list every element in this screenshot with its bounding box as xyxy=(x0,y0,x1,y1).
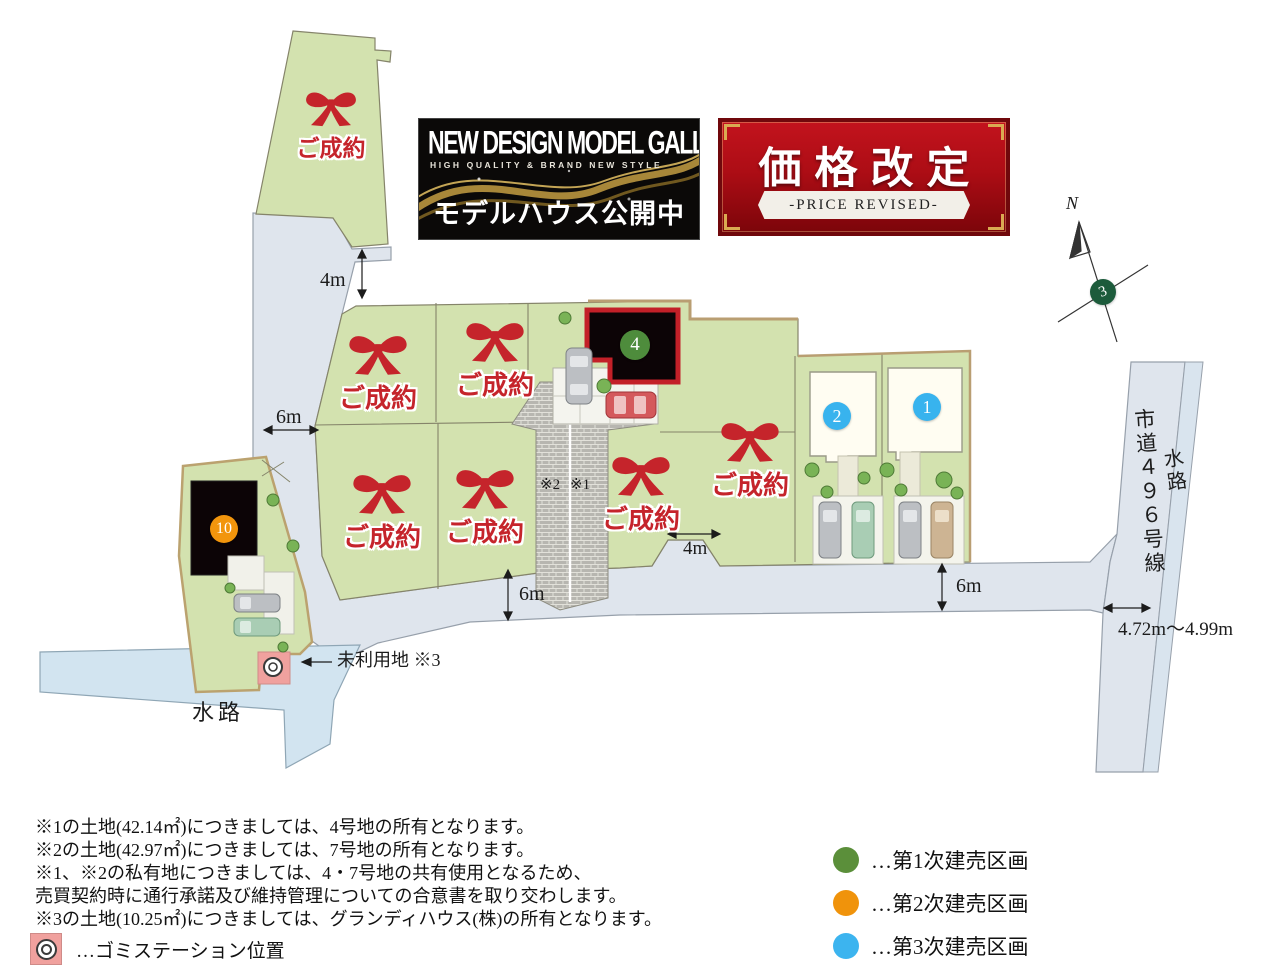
ribbon-bow-icon xyxy=(452,465,518,511)
sold-ribbon: ご成約 xyxy=(330,331,426,415)
garbage-station-legend: …ゴミステーション位置 xyxy=(30,933,285,965)
lot4-number-badge: 4 xyxy=(620,330,650,360)
legend-item-phase3: …第3次建売区画 xyxy=(833,931,1029,961)
footnote-line: ※1の土地(42.14㎡)につきましては、4号地の所有となります。 xyxy=(35,816,662,839)
legend-item-phase2: …第2次建売区画 xyxy=(833,888,1029,918)
measure-top-gap: 4m xyxy=(320,270,346,290)
lot4-number: 4 xyxy=(630,334,640,356)
measure-west-road: 6m xyxy=(276,407,302,427)
ribbon-bow-icon xyxy=(302,88,360,128)
gold-corner-icon xyxy=(988,214,1004,230)
ribbon-bow-icon xyxy=(717,418,783,464)
phase2-dot-icon xyxy=(833,890,859,916)
sold-label: ご成約 xyxy=(297,129,366,163)
measure-south-road-east: 6m xyxy=(956,576,982,596)
sold-ribbon: ご成約 xyxy=(447,318,543,402)
ribbon-bow-icon xyxy=(462,318,528,364)
sold-label: ご成約 xyxy=(711,465,789,502)
phase3-dot-icon xyxy=(833,933,859,959)
private-area-1-label: ※1 xyxy=(570,478,590,493)
garbage-station-marker xyxy=(258,652,290,684)
footnote-line: 売買契約時に通行承諾及び維持管理についての合意書を取り交わします。 xyxy=(35,885,662,908)
lot10-number-badge: 10 xyxy=(210,515,238,543)
price-revised-banner: 価格改定 -PRICE REVISED- xyxy=(718,118,1010,236)
price-banner-subtitle: -PRICE REVISED- xyxy=(789,197,939,214)
lot10-number: 10 xyxy=(216,520,232,538)
ribbon-bow-icon xyxy=(345,331,411,377)
site-plan-page: ご成約 ご成約 ご成約 ご成約 ご成約 xyxy=(0,0,1280,979)
sold-ribbon: ご成約 xyxy=(283,88,379,163)
gallery-banner-title: NEW DESIGN MODEL GALLERY xyxy=(428,125,700,163)
model-gallery-banner: NEW DESIGN MODEL GALLERY HIGH QUALITY & … xyxy=(418,118,700,240)
phase-legend: …第1次建売区画 …第2次建売区画 …第3次建売区画 xyxy=(833,845,1029,961)
gold-corner-icon xyxy=(724,214,740,230)
ribbon-bow-icon xyxy=(349,470,415,516)
south-canal-label: 水路 xyxy=(192,702,244,724)
sold-label: ご成約 xyxy=(446,512,524,549)
phase1-label: …第1次建売区画 xyxy=(871,845,1029,875)
footnote-line: ※2の土地(42.97㎡)につきましては、7号地の所有となります。 xyxy=(35,839,662,862)
measure-east-road-width: 4.72m〜4.99m xyxy=(1118,620,1233,639)
phase1-dot-icon xyxy=(833,847,859,873)
private-area-2-label: ※2 xyxy=(540,478,560,493)
sold-label: ご成約 xyxy=(456,365,534,402)
price-banner-ribbon: -PRICE REVISED- xyxy=(758,191,970,219)
footnote-line: ※1、※2の私有地につきましては、4・7号地の共有使用となるため、 xyxy=(35,862,662,885)
ribbon-bow-icon xyxy=(608,452,674,498)
compass-north-label: N xyxy=(1066,194,1078,212)
garbage-station-label: …ゴミステーション位置 xyxy=(76,936,285,963)
lot2-number: 2 xyxy=(833,406,842,427)
garbage-station-icon xyxy=(30,933,62,965)
footnote-line: ※3の土地(10.25㎡)につきましては、グランディハウス(株)の所有となります… xyxy=(35,908,662,931)
phase3-label: …第3次建売区画 xyxy=(871,931,1029,961)
gallery-banner-caption: モデルハウス公開中 xyxy=(419,192,699,231)
measure-south-road-west: 6m xyxy=(519,584,545,604)
sold-ribbon: ご成約 xyxy=(334,470,430,554)
legend-item-phase1: …第1次建売区画 xyxy=(833,845,1029,875)
sold-label: ご成約 xyxy=(339,378,417,415)
lot2-number-badge: 2 xyxy=(823,402,851,430)
measure-driveway: 4m xyxy=(683,539,707,558)
sold-ribbon: ご成約 xyxy=(593,452,689,536)
sold-label: ご成約 xyxy=(602,499,680,536)
sold-ribbon: ご成約 xyxy=(702,418,798,502)
lot1-number-badge: 1 xyxy=(913,393,941,421)
unused-land-label: 未利用地 ※3 xyxy=(337,651,441,669)
lot1-number: 1 xyxy=(923,397,932,418)
sold-label: ご成約 xyxy=(343,517,421,554)
price-banner-title: 価格改定 xyxy=(722,134,1006,196)
sold-ribbon: ご成約 xyxy=(437,465,533,549)
compass-point-number: 3 xyxy=(1096,283,1109,302)
phase2-label: …第2次建売区画 xyxy=(871,888,1029,918)
gallery-banner-subtitle: HIGH QUALITY & BRAND NEW STYLE xyxy=(430,160,662,170)
footnotes: ※1の土地(42.14㎡)につきましては、4号地の所有となります。 ※2の土地(… xyxy=(35,816,662,931)
